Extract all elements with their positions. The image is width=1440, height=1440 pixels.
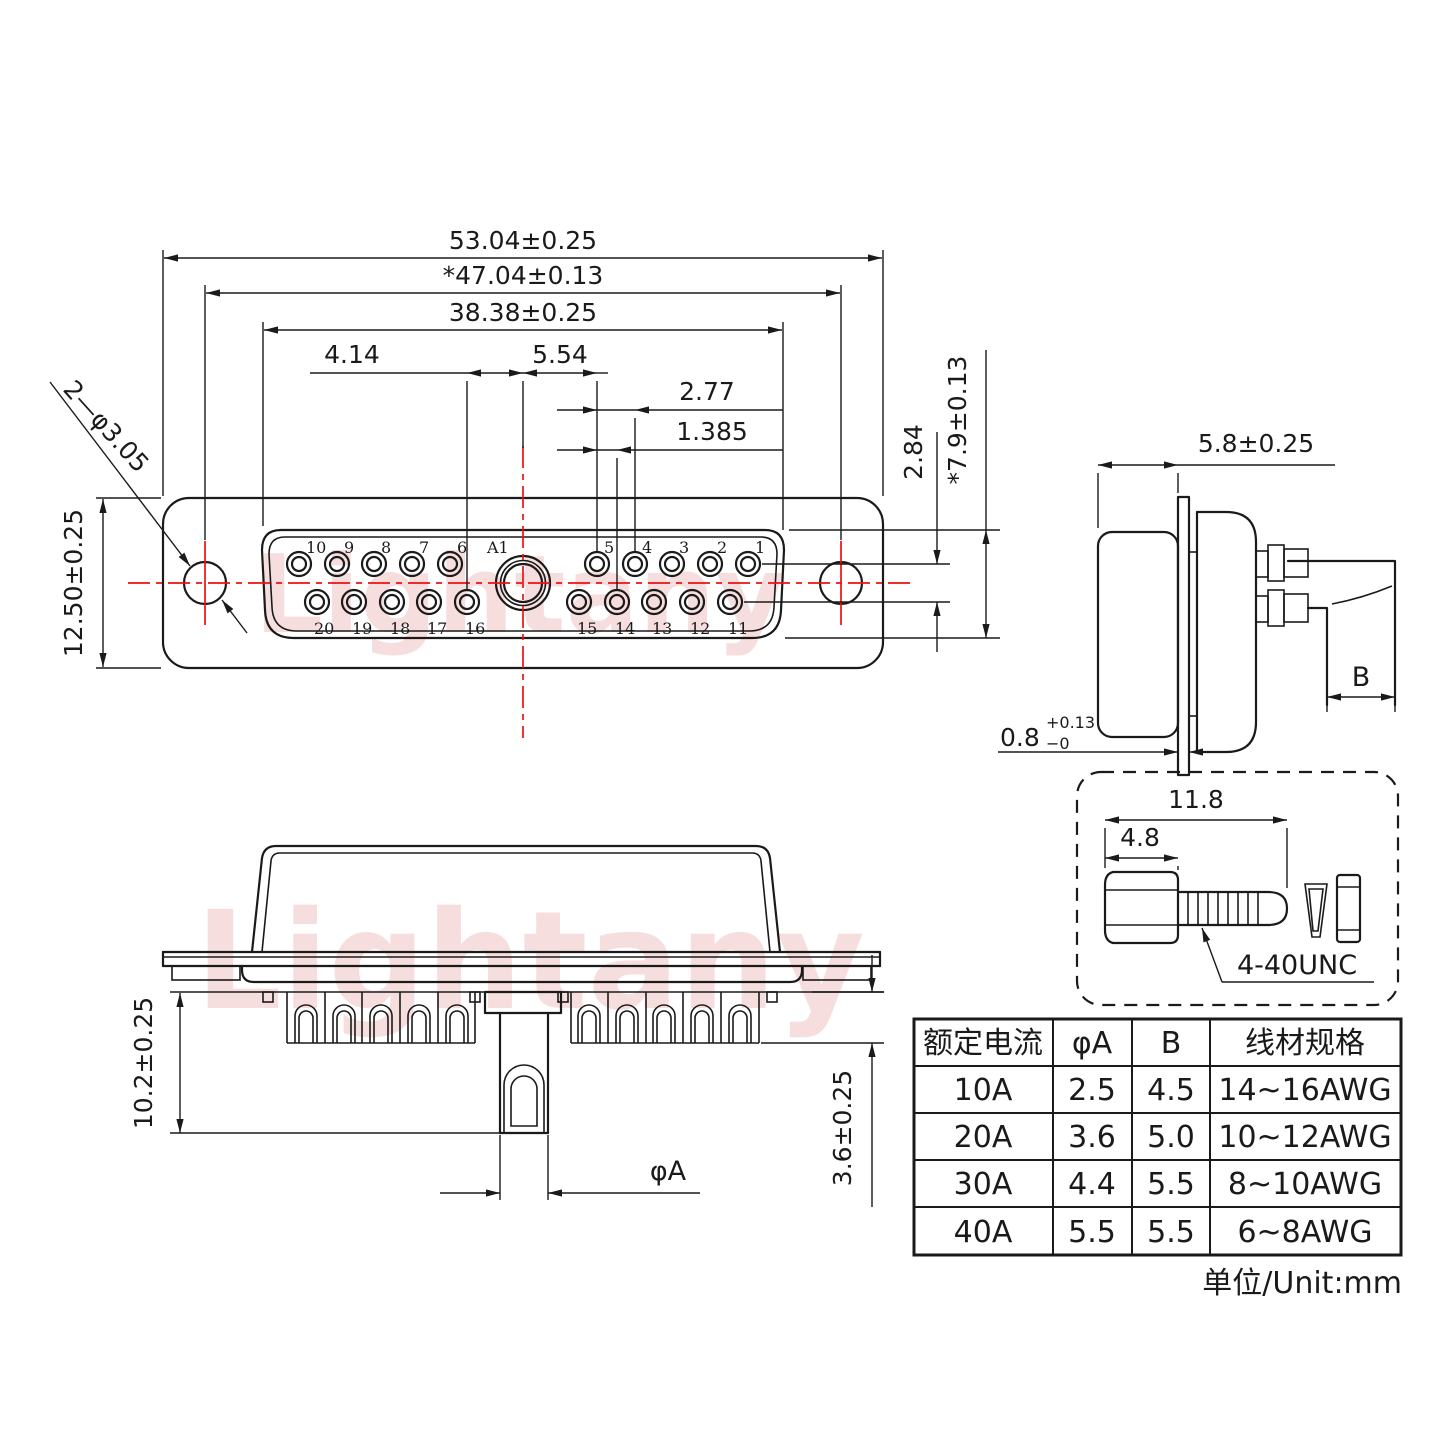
table-cell: 2.5 [1068, 1073, 1116, 1108]
svg-text:8: 8 [381, 538, 391, 557]
svg-text:1: 1 [755, 538, 765, 557]
svg-text:2: 2 [717, 538, 727, 557]
table-cell: 6~8AWG [1237, 1215, 1372, 1250]
svg-text:6: 6 [457, 538, 467, 557]
dim-row-spacing: 2.84 [899, 424, 928, 480]
drawing-page: Lightany Lightany [0, 0, 1440, 1440]
table-cell: 5.5 [1147, 1215, 1195, 1250]
dim-section-height: 10.2±0.25 [129, 997, 158, 1129]
thread-spec: 4-40UNC [1237, 950, 1357, 981]
table-cell: 10A [954, 1073, 1013, 1108]
dim-screw-head: 4.8 [1120, 823, 1160, 852]
dim-insert-width: 38.38±0.25 [449, 298, 597, 327]
svg-text:17: 17 [427, 619, 447, 638]
table-cell: 5.5 [1147, 1167, 1195, 1202]
table-cell: 20A [954, 1120, 1013, 1155]
svg-text:19: 19 [352, 619, 372, 638]
dim-pin-pitch: 2.77 [679, 377, 735, 406]
svg-text:11: 11 [728, 619, 748, 638]
screw-thread [1178, 892, 1287, 925]
flange-thickness-value: 0.8 [1000, 723, 1040, 752]
table-cell: 5.0 [1147, 1120, 1195, 1155]
dim-shell-height: 12.50±0.25 [59, 509, 88, 657]
table-cell: 14~16AWG [1218, 1073, 1391, 1108]
table-cell: 4.4 [1068, 1167, 1116, 1202]
center-post [485, 992, 561, 1133]
table-cell: 5.5 [1068, 1215, 1116, 1250]
dim-flange-thickness: 0.8 +0.13 −0 [1000, 713, 1095, 753]
table-cell: 8~10AWG [1228, 1167, 1382, 1202]
dim-side-depth: 5.8±0.25 [1198, 429, 1314, 458]
dim-screw-total: 11.8 [1168, 785, 1224, 814]
svg-text:20: 20 [314, 619, 334, 638]
dim-cup-depth: 3.6±0.25 [828, 1070, 857, 1186]
table-header-wire: 线材规格 [1245, 1026, 1365, 1061]
svg-text:14: 14 [615, 619, 635, 638]
dim-pin16-offset: 4.14 [324, 340, 380, 369]
dim-post-diameter: φA [650, 1156, 687, 1187]
connector-drawing: Lightany Lightany [0, 0, 1440, 1440]
svg-text:9: 9 [344, 538, 354, 557]
svg-text:15: 15 [577, 619, 597, 638]
dim-mount-spacing: *47.04±0.13 [443, 261, 604, 290]
dim-row-offset: 1.385 [676, 417, 748, 446]
table-header-phiA: φA [1072, 1026, 1113, 1061]
unit-note: 单位/Unit:mm [1202, 1266, 1402, 1301]
svg-text:12: 12 [690, 619, 710, 638]
dim-overall-width: 53.04±0.25 [449, 226, 597, 255]
flange-thickness-minus: −0 [1046, 734, 1070, 753]
table-cell: 30A [954, 1167, 1013, 1202]
svg-text:4: 4 [642, 538, 652, 557]
screw-head [1105, 872, 1178, 943]
svg-text:A1: A1 [486, 538, 509, 557]
table-cell: 3.6 [1068, 1120, 1116, 1155]
svg-text:16: 16 [465, 619, 485, 638]
side-flange [1178, 497, 1189, 775]
screw-nut [1337, 875, 1360, 942]
dim-insert-height: *7.9±0.13 [943, 356, 972, 485]
dim-wire-width: B [1352, 662, 1371, 693]
table-header-B: B [1161, 1026, 1182, 1061]
table-cell: 4.5 [1147, 1073, 1195, 1108]
svg-text:10: 10 [306, 538, 326, 557]
dim-mount-hole-callout: 2—φ3.05 [58, 375, 155, 478]
side-wire [1288, 561, 1395, 705]
table-header-current: 额定电流 [923, 1026, 1043, 1061]
svg-text:13: 13 [652, 619, 672, 638]
dim-pin5-offset: 5.54 [532, 340, 588, 369]
svg-text:5: 5 [604, 538, 614, 557]
side-terminals [1256, 545, 1308, 626]
side-front-shell [1098, 532, 1178, 737]
table-cell: 40A [954, 1215, 1013, 1250]
side-back-body [1197, 512, 1256, 752]
spec-table: 额定电流 φA B 线材规格 10A 2.5 4.5 14~16AWG 20A … [914, 1019, 1402, 1301]
flange-thickness-plus: +0.13 [1046, 713, 1095, 732]
table-cell: 10~12AWG [1218, 1120, 1391, 1155]
svg-text:3: 3 [679, 538, 689, 557]
svg-text:7: 7 [419, 538, 429, 557]
side-insulator [1189, 552, 1197, 716]
screw-wedge [1305, 884, 1327, 937]
svg-text:18: 18 [390, 619, 410, 638]
